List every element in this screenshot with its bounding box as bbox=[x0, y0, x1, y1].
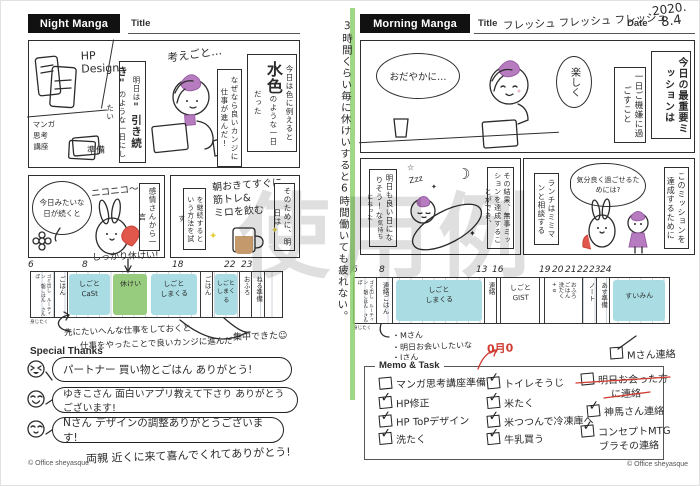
milo-mug-icon bbox=[223, 224, 269, 256]
left-title-label: Title bbox=[131, 18, 150, 29]
checkbox-icon: ✓ bbox=[486, 432, 500, 445]
goal-box: 一日ご機嫌に過ごすこと bbox=[614, 67, 646, 143]
timeline-segment-sleep: すいみん bbox=[613, 280, 665, 321]
lunch-box: ランチはミミマンと相談する bbox=[534, 173, 559, 245]
timeline-segment: あす準備 bbox=[597, 278, 610, 323]
task-item: ブラその連絡 bbox=[599, 436, 659, 453]
morning-timeline-bar: ゴミ出し ルーティン 朝ごはん さんぽ 連絡ごはん しごと しまくる 連絡 しご… bbox=[353, 277, 670, 324]
timeline-segment: ねる準備 bbox=[252, 272, 265, 317]
hour-label: 24 bbox=[600, 265, 611, 275]
result-box: その結果、無事ミッションを達成することができ、 bbox=[487, 167, 514, 249]
checkbox-icon bbox=[378, 377, 392, 390]
morning-girl-character bbox=[461, 49, 557, 153]
hour-label: 6 bbox=[28, 260, 34, 270]
night-manga-badge: Night Manga bbox=[28, 14, 120, 33]
hour-label: 19 bbox=[539, 265, 550, 275]
morning-panel-3: ランチはミミマンと相談する 気分良く過ごせるためには? このミッションを達成する… bbox=[523, 158, 695, 255]
right-title-label: Title bbox=[478, 18, 497, 29]
morning-manga-badge: Morning Manga bbox=[360, 14, 470, 33]
task-item: ✓米つつんで冷凍庫へ bbox=[487, 412, 594, 430]
checkbox-icon: ✓ bbox=[586, 404, 600, 417]
calm-speech-bubble: おだやかに… bbox=[376, 53, 460, 99]
reason-box: なぜなら良いカンジに仕事が進んだ! bbox=[217, 69, 242, 167]
timeline-note-3: 集中できた☺ bbox=[233, 328, 288, 343]
grinning-face-icon bbox=[27, 390, 46, 409]
right-title-line bbox=[474, 33, 695, 34]
timeline-segment-work: しごと しまくる bbox=[396, 280, 482, 321]
timeline-segment: ゴミ出し ルーティン 朝ごはん さんぽ bbox=[354, 278, 377, 323]
thanks-bubble: パートナー 買い物とごはん ありがとう! bbox=[52, 357, 292, 382]
morning-panel-2: 明日も良い日になりそう!な気持ちになった Zzz ☽ ☆ ✦ ✦ その結果、無事… bbox=[360, 158, 521, 255]
timeline-segment: 連絡 bbox=[484, 278, 497, 323]
below-bar-note: 身じたく bbox=[30, 319, 48, 325]
thanks-bubble: ゆきこさん 面白いアプリ教えて下さり ありがとうございます! bbox=[52, 387, 298, 413]
emotion-caption-box: 感情さんから一言 bbox=[139, 183, 160, 251]
junbi-note: 準備 bbox=[87, 143, 105, 157]
rabbit-and-girl-characters bbox=[576, 201, 662, 255]
flower-doodle-icon bbox=[31, 230, 53, 254]
night-timeline-bar: ゴミ出し ルーティン 朝ごはん さんぽ ごはん しごと CaSt 休けい しごと… bbox=[30, 271, 283, 318]
for-tomorrow-box: そのために、明日は bbox=[274, 183, 295, 251]
timeline-segment: おふろ bbox=[239, 272, 252, 317]
thanks-extra-note: 両親 近くに来て喜んでくれてありがとう! bbox=[86, 443, 291, 466]
hour-label: 13 bbox=[476, 265, 487, 275]
task-item: ✓牛乳買う bbox=[487, 430, 544, 446]
task-item: ✓洗たく bbox=[379, 430, 426, 446]
timeline-segment-work: しごと CaSt bbox=[69, 274, 110, 315]
hour-label: 23 bbox=[589, 265, 600, 275]
below-bar-note: 身じたく bbox=[353, 325, 371, 331]
method-box: を継続するという方法を試す bbox=[183, 188, 206, 250]
star-icon: ☆ bbox=[407, 163, 414, 172]
checkbox-icon: ✓ bbox=[378, 396, 392, 409]
checkbox-icon: ✓ bbox=[486, 396, 500, 409]
red-date-note: 0月0 bbox=[487, 340, 514, 357]
task-item: ✓HP ToPデザイン bbox=[379, 412, 470, 429]
date-label: Date bbox=[627, 18, 648, 29]
task-item: ✓神馬さん連絡 bbox=[587, 402, 664, 419]
niconico-note: ニコニコ〜 bbox=[90, 181, 139, 200]
tomorrow-wish-box: 明日は"引き続き"のような一日にしたい bbox=[119, 61, 146, 163]
task-item-crossed: に連絡 bbox=[611, 385, 641, 401]
timeline-segment: ごはん bbox=[55, 272, 68, 317]
rabbit-speech-bubble: 今日みたいな日が続くと bbox=[32, 181, 92, 235]
floating-task: Mさん連絡 bbox=[610, 346, 676, 361]
sparkle-icon: ✦ bbox=[271, 226, 279, 236]
timeline-segment-work: しごと しまくる bbox=[151, 274, 197, 315]
timeline-segment: ゴミ出し ルーティン 朝ごはん さんぽ bbox=[31, 272, 55, 317]
rest-annotation: しっかり休けい! bbox=[92, 248, 159, 263]
today-color-box: 今日は色に例えると水色のような一日だった bbox=[247, 54, 297, 152]
sparkle-icon: ✦ bbox=[209, 231, 217, 242]
zzz-note: Zzz bbox=[408, 174, 423, 186]
timeline-segment-work: しごと しまくる bbox=[215, 274, 237, 315]
laughing-face-icon bbox=[27, 360, 46, 379]
task-item: マンガ思考講座準備 bbox=[379, 374, 486, 392]
fun-speech-bubble: 楽しく bbox=[556, 56, 592, 108]
left-title-line bbox=[128, 33, 300, 34]
mission-box: 今日の最重要ミッションは bbox=[651, 51, 691, 139]
tomorrow-feeling-box: 明日も良い日になりそう!な気持ちになった bbox=[369, 169, 397, 247]
hour-label: 20 bbox=[552, 265, 563, 275]
hour-label: 23 bbox=[241, 260, 252, 270]
checkbox-icon: ✓ bbox=[486, 376, 500, 389]
hour-label: 8 bbox=[82, 260, 88, 270]
copyright-right: © Office sheyasque bbox=[627, 461, 688, 468]
hour-label: 21 bbox=[565, 265, 576, 275]
phone-sketch-icon bbox=[35, 53, 81, 119]
morning-panel-1: おだやかに… 楽しく 一日ご機嫌に過ごすこと 今日の最重要ミッションは bbox=[360, 40, 695, 153]
hour-label: 18 bbox=[172, 260, 183, 270]
night-panel-2: 今日みたいな日が続くと ニコニコ〜 感情さんから一言 bbox=[28, 175, 165, 258]
task-item: ✓トイレそうじ bbox=[487, 374, 564, 391]
journal-sheet: Night Manga Title HP Design マンガ 思考 講座 準備… bbox=[0, 0, 700, 486]
moon-icon: ☽ bbox=[457, 165, 470, 183]
timeline-note-m: ・Mさん bbox=[392, 329, 423, 341]
memo-task-box: Memo & Task マンガ思考講座準備 ✓HP修正 ✓HP ToPデザイン … bbox=[364, 366, 664, 460]
timeline-segment: ノート bbox=[585, 278, 597, 323]
hour-label: 22 bbox=[224, 260, 235, 270]
checkbox-icon: ✓ bbox=[580, 424, 594, 437]
special-thanks-label: Special Thanks bbox=[30, 346, 103, 357]
sleeping-character bbox=[399, 189, 487, 253]
hour-label: 22 bbox=[577, 265, 588, 275]
checkbox-icon bbox=[610, 347, 624, 360]
checkbox-icon: ✓ bbox=[378, 432, 392, 445]
night-panel-3: を継続するという方法を試す 朝おきてすぐに 筋トレ& ミロを飲む そのために、明… bbox=[170, 175, 300, 258]
timeline-segment: おふろ ごはん 洗たく +α bbox=[544, 278, 583, 323]
memo-task-label: Memo & Task bbox=[375, 360, 444, 371]
timeline-segment: 連絡ごはん bbox=[377, 278, 393, 323]
hp-design-note: HP Design bbox=[81, 48, 120, 75]
thanks-bubble: Nさん デザインの調整ありがとうございます! bbox=[52, 417, 284, 443]
timeline-segment-rest: 休けい bbox=[113, 274, 147, 315]
smiling-face-icon bbox=[27, 420, 46, 439]
night-panel-1: HP Design マンガ 思考 講座 準備 考えごと… 明日は"引き続き"のよ… bbox=[28, 40, 300, 168]
copyright-left: © Office sheyasque bbox=[28, 460, 89, 467]
timeline-segment: しごと GIST bbox=[500, 278, 540, 323]
manga-kouza-note: マンガ 思考 講座 bbox=[32, 119, 56, 153]
hour-label: 16 bbox=[492, 265, 503, 275]
for-mission-box: このミッションを達成するために bbox=[664, 167, 689, 249]
timeline-segment: ごはん bbox=[200, 272, 213, 317]
hour-label: 8 bbox=[379, 265, 385, 275]
checkbox-icon bbox=[580, 372, 594, 385]
date-day-note: 8.4 bbox=[660, 13, 683, 31]
